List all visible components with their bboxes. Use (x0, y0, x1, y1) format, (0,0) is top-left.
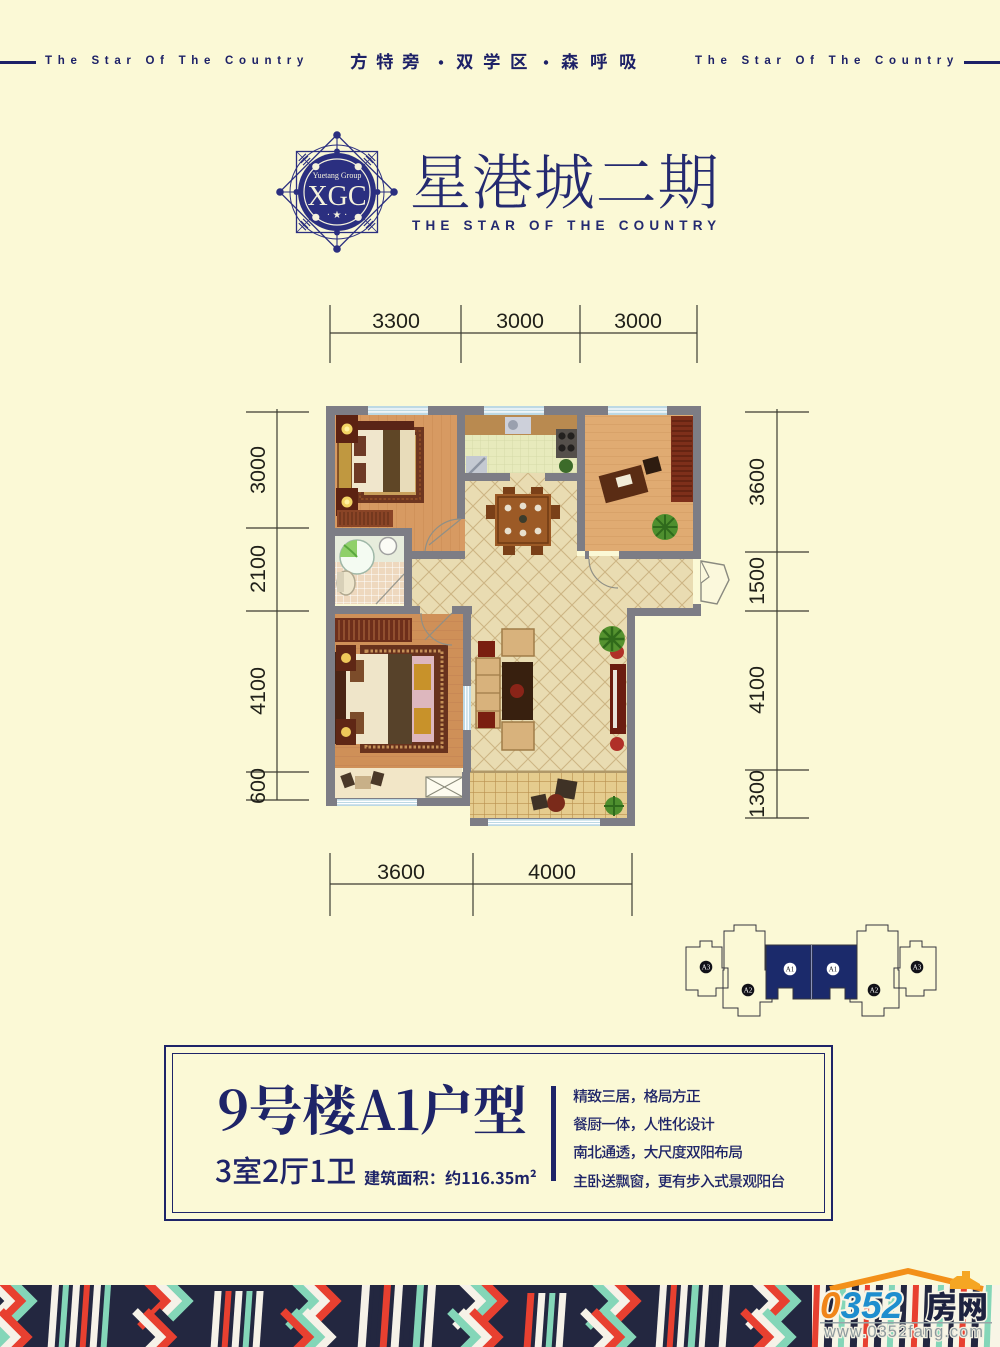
svg-text:A2: A2 (870, 987, 879, 995)
svg-text:A1: A1 (829, 966, 838, 974)
svg-text:4100: 4100 (745, 666, 769, 714)
svg-text:A3: A3 (913, 964, 922, 972)
svg-text:3600: 3600 (377, 860, 425, 884)
svg-text:A3: A3 (702, 964, 711, 972)
svg-text:3300: 3300 (372, 309, 420, 333)
svg-text:· ★ ·: · ★ · (327, 210, 348, 221)
svg-text:1500: 1500 (745, 557, 769, 605)
svg-text:3600: 3600 (745, 458, 769, 506)
svg-text:3000: 3000 (496, 309, 544, 333)
svg-text:4000: 4000 (528, 860, 576, 884)
svg-text:A1: A1 (786, 966, 795, 974)
svg-text:XGC: XGC (307, 181, 366, 212)
svg-text:A2: A2 (744, 987, 753, 995)
svg-text:600: 600 (246, 768, 270, 804)
svg-text:2100: 2100 (246, 545, 270, 593)
svg-text:www.0352fang.com: www.0352fang.com (823, 1323, 984, 1341)
svg-text:4100: 4100 (246, 667, 270, 715)
svg-text:0352: 0352 (820, 1285, 903, 1326)
svg-text:Yuetang Group: Yuetang Group (313, 171, 362, 180)
svg-text:1300: 1300 (745, 770, 769, 818)
svg-text:3000: 3000 (246, 446, 270, 494)
svg-text:3000: 3000 (614, 309, 662, 333)
